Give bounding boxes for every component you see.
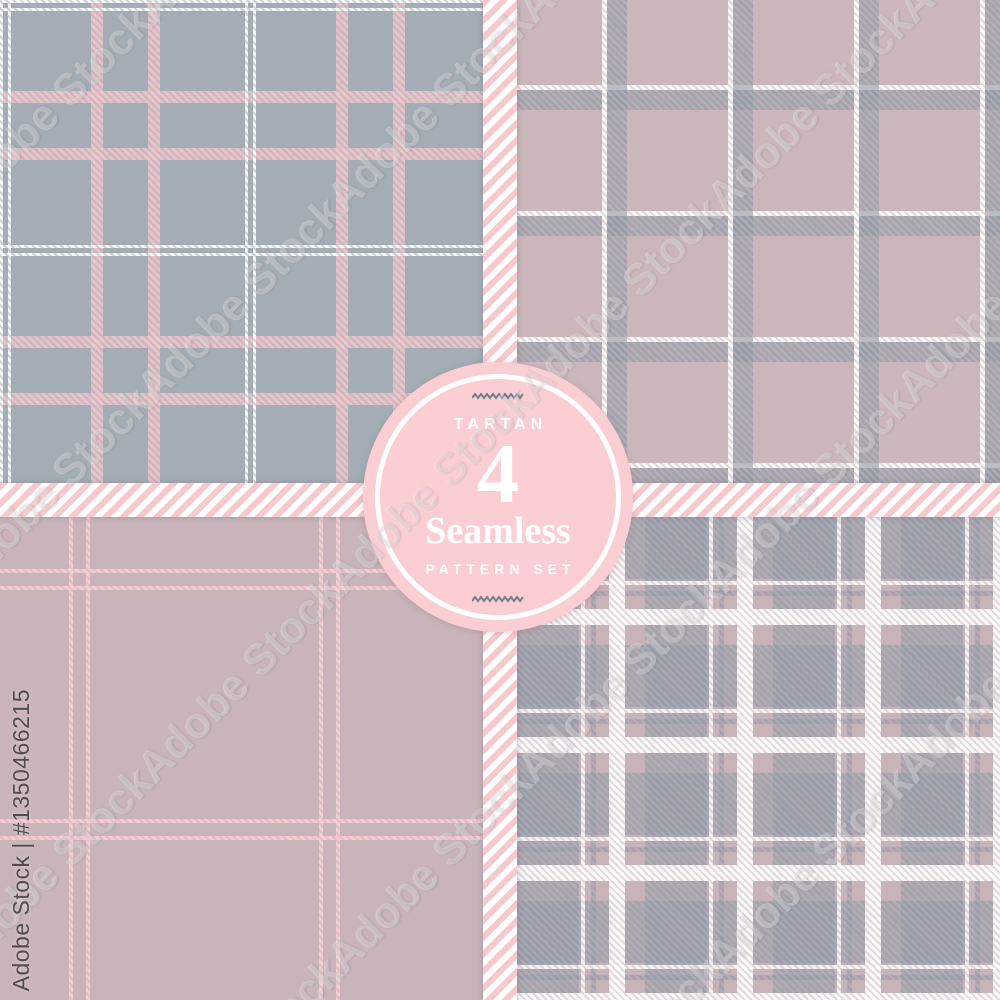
- badge-count: 4: [363, 432, 633, 517]
- stock-credit-text: Adobe Stock | #1350466215: [8, 689, 35, 991]
- pattern-set-preview: TARTAN 4 Seamless PATTERN SET Adobe Stoc…: [0, 0, 1000, 1000]
- zigzag-ornament-bottom-icon: [472, 595, 524, 603]
- stock-credit: Adobe Stock | #1350466215: [8, 689, 35, 996]
- badge-middle-label: Seamless: [363, 512, 633, 550]
- zigzag-ornament-top-icon: [472, 392, 524, 400]
- center-badge: TARTAN 4 Seamless PATTERN SET: [363, 362, 633, 632]
- badge-bottom-label: PATTERN SET: [363, 561, 633, 577]
